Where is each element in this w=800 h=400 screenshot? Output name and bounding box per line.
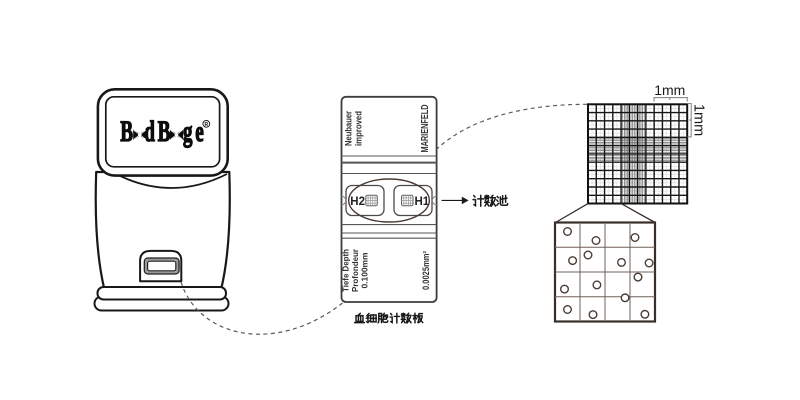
- svg-text:B: B: [158, 116, 171, 148]
- svg-text:1mm: 1mm: [654, 82, 685, 98]
- svg-text:0.0025mm²: 0.0025mm²: [421, 251, 431, 290]
- svg-text:1mm: 1mm: [691, 104, 707, 136]
- svg-text:Neubauer: Neubauer: [344, 111, 354, 146]
- svg-text:R: R: [204, 122, 208, 128]
- svg-text:Tiefe Depth: Tiefe Depth: [341, 249, 351, 292]
- svg-text:g: g: [183, 116, 193, 148]
- svg-text:B: B: [120, 116, 133, 148]
- svg-text:0.100mm: 0.100mm: [360, 252, 370, 288]
- svg-text:e: e: [195, 116, 204, 148]
- svg-text:MARIENFELD: MARIENFELD: [420, 105, 431, 153]
- svg-text:Profondeur: Profondeur: [350, 248, 360, 292]
- svg-text:H2: H2: [350, 196, 365, 208]
- svg-text:improved: improved: [354, 111, 364, 146]
